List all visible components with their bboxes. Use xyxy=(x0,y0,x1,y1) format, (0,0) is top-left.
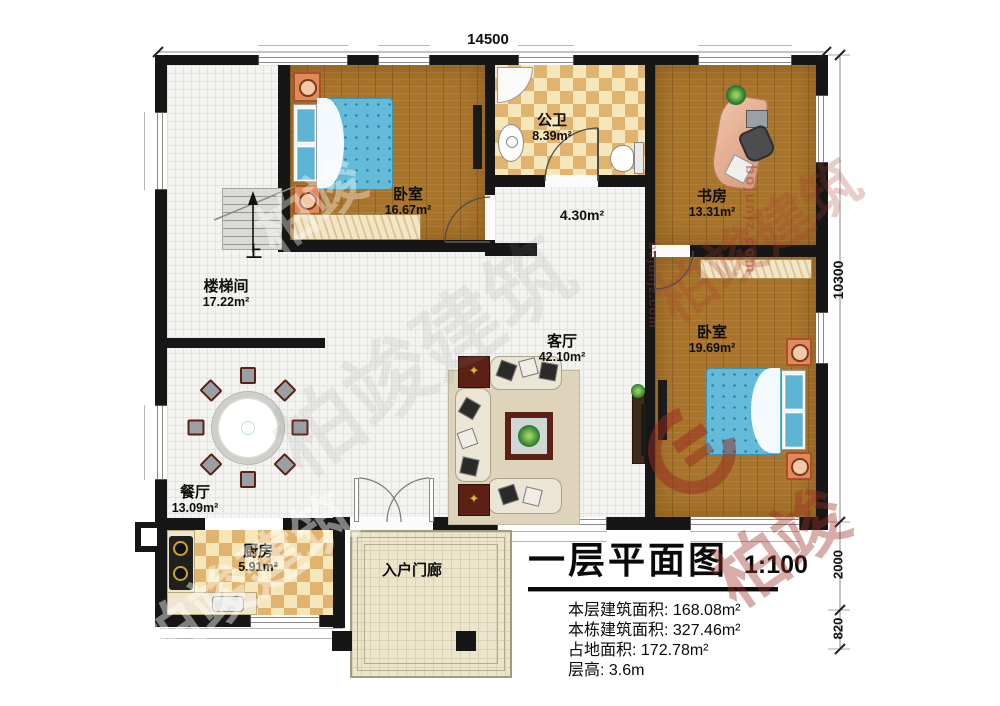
room-area: 13.09m² xyxy=(135,501,255,515)
label-kitchen: 厨房 5.91m² xyxy=(198,543,318,575)
dim-right-total-label: 10300 xyxy=(830,252,846,308)
label-study: 书房 13.31m² xyxy=(652,188,772,220)
label-bedroom2: 卧室 19.69m² xyxy=(652,324,772,356)
label-stairwell: 楼梯间 17.22m² xyxy=(166,278,286,310)
entry-door-arc-right xyxy=(387,478,429,522)
room-name: 卧室 xyxy=(348,186,468,203)
room-area: 4.30m² xyxy=(522,207,642,223)
label-bathroom: 公卫 8.39m² xyxy=(492,112,612,144)
dim-right-step-label: 820 xyxy=(831,609,846,649)
room-area: 19.69m² xyxy=(652,341,772,355)
room-area: 16.67m² xyxy=(348,203,468,217)
room-area: 5.91m² xyxy=(198,560,318,574)
room-name: 公卫 xyxy=(492,112,612,129)
room-name: 书房 xyxy=(652,188,772,205)
room-area: 17.22m² xyxy=(166,295,286,309)
room-name: 卧室 xyxy=(652,324,772,341)
label-living: 客厅 42.10m² xyxy=(502,333,622,365)
dim-top-label: 14500 xyxy=(438,31,538,48)
stairs-up-label: 上 xyxy=(242,238,266,262)
room-name: 楼梯间 xyxy=(166,278,286,295)
door-arc-bedroom2 xyxy=(655,251,693,289)
plan-annotations xyxy=(0,0,1000,706)
dim-right-porch-label: 2000 xyxy=(831,541,846,589)
room-area: 13.31m² xyxy=(652,205,772,219)
room-area: 42.10m² xyxy=(502,350,622,364)
label-dining: 餐厅 13.09m² xyxy=(135,484,255,516)
floorplan-canvas: ✦ ✦ xyxy=(0,0,1000,706)
room-name: 餐厅 xyxy=(135,484,255,501)
room-name: 入户门廊 xyxy=(350,562,474,579)
label-porch: 入户门廊 xyxy=(350,562,474,579)
label-corridor: 4.30m² xyxy=(522,207,642,223)
label-bedroom1: 卧室 16.67m² xyxy=(348,186,468,218)
room-name: 客厅 xyxy=(502,333,622,350)
entry-door-arc-left xyxy=(359,478,401,522)
stairs-arrow-head xyxy=(248,191,258,205)
room-name: 厨房 xyxy=(198,543,318,560)
room-area: 8.39m² xyxy=(492,129,612,143)
